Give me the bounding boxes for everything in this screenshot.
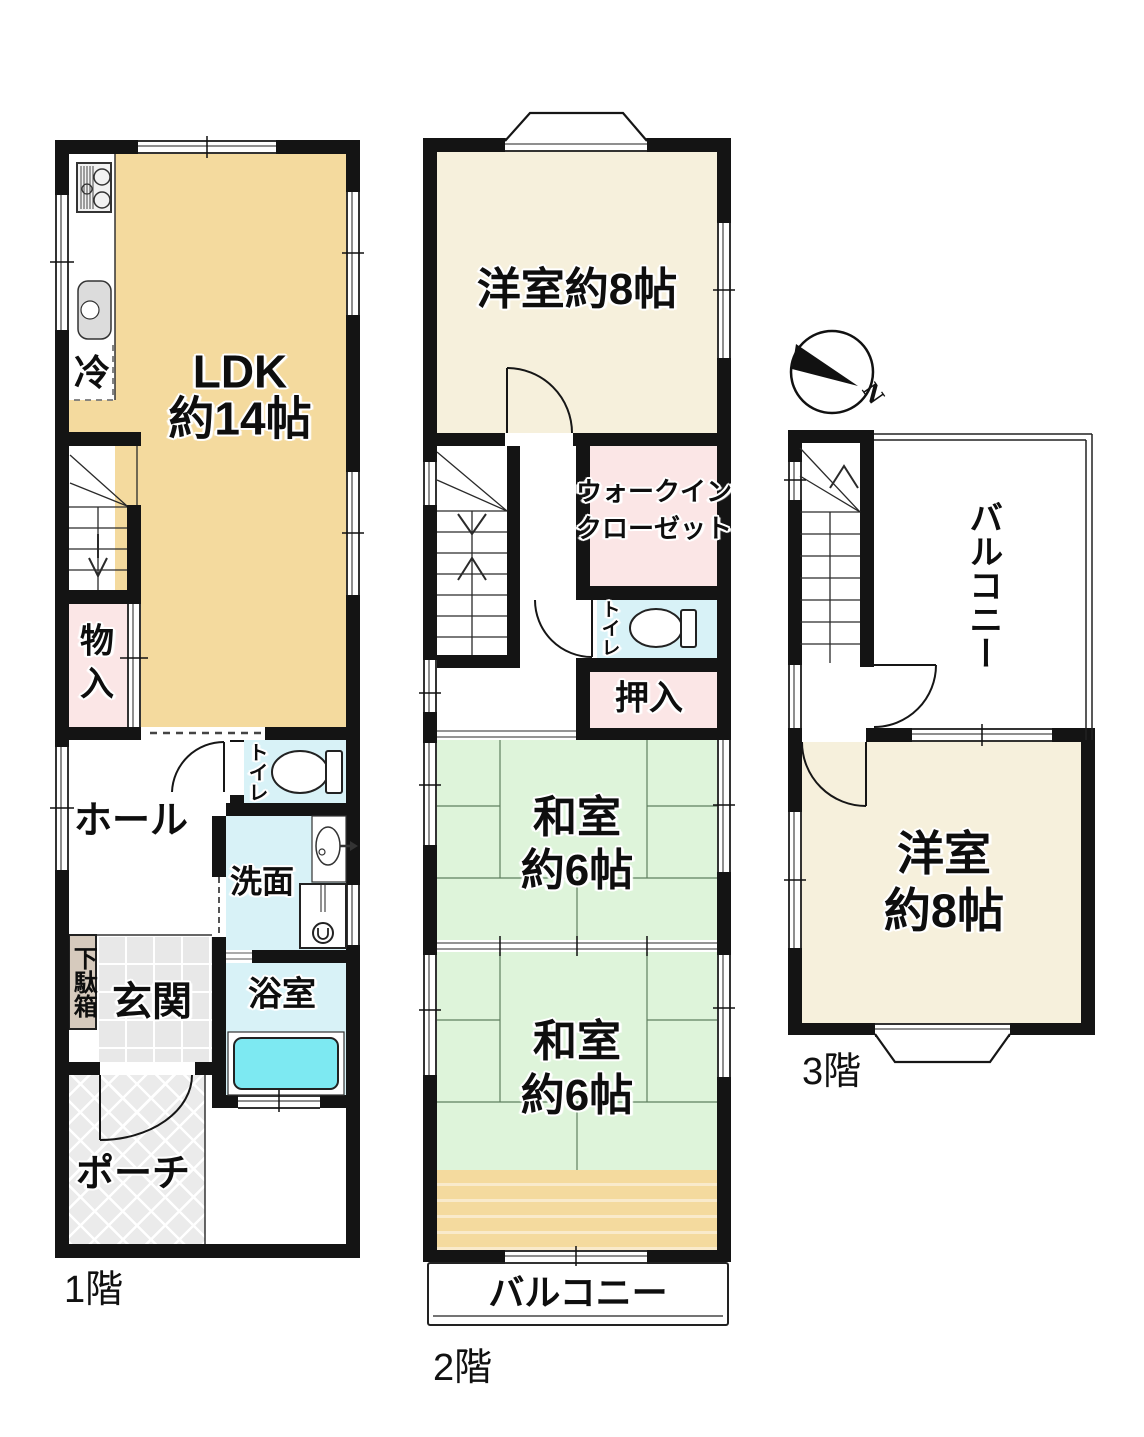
label-balcony-3f: バルコニー [963,500,1000,670]
room-western3f-area [800,742,1081,1023]
stairs-up-arrow-icon [458,558,486,580]
label-western2f: 洋室約8帖 [477,266,677,314]
stove-icon [77,163,111,212]
kitchen-sink-icon [78,281,111,339]
window [346,885,360,945]
window [55,747,69,870]
north-label: N [856,378,889,409]
label-tatami-b-line2: 約6帖 [521,1072,633,1120]
floor1-label: 1階 [64,1258,123,1313]
label-ldk-line1: LDK [193,347,288,398]
label-porch: ポーチ [76,1154,190,1196]
wall-segment [212,816,226,877]
stairs-up-arrow-icon [830,466,858,488]
label-tatami-a-line2: 約6帖 [521,847,633,895]
compass-icon: N [791,331,889,413]
label-shoe-cabinet: 下駄箱 [69,946,95,1018]
window [788,462,802,500]
floor2-label: 2階 [433,1336,492,1391]
door-opening [100,1062,195,1075]
floor-plan-canvas: N [0,0,1144,1437]
label-ldk-line2: 約14帖 [168,394,311,445]
window [505,138,647,152]
window [717,740,731,872]
label-toilet-1f: トイレ [245,742,267,802]
label-walkin-line1: ウォークイン [576,478,732,507]
sliding-door [127,604,141,727]
wall-segment [507,446,520,668]
door-arc [874,665,936,727]
label-western3f-line2: 約8帖 [884,885,1004,937]
stairs-down-arrow-icon [89,534,107,576]
label-fridge: 冷 [74,353,110,393]
window [238,1095,320,1109]
wall-segment [55,432,141,446]
window [423,743,437,845]
label-western3f-line1: 洋室 [897,828,991,880]
wall-segment [576,586,731,600]
wood-strip-area [437,1170,717,1250]
door-opening [212,877,226,937]
door-opening [226,950,252,963]
door-opening [505,433,573,446]
door-arc [535,600,592,657]
wall-segment [437,655,507,668]
wall-segment [55,727,141,740]
window [788,812,802,948]
label-toilet-2f: トイレ [598,600,619,657]
window [505,1250,647,1264]
stairs-3f [800,448,860,663]
sliding-opening [437,940,717,952]
wall-segment [55,1244,360,1258]
wall-segment [265,727,360,740]
window [55,195,69,330]
wall-segment [212,950,226,1108]
label-walkin-line2: クローゼット [576,515,732,544]
wall-segment [860,430,874,667]
label-storage: 物入 [78,621,116,706]
bay-window [875,1034,1010,1062]
window [423,660,437,712]
label-hall: ホール [74,801,188,843]
window [346,472,360,595]
floor3-label: 3階 [802,1040,861,1095]
window [788,665,802,728]
window [423,462,437,505]
window [875,1023,1010,1037]
door-opening [802,728,866,742]
wall-segment [1081,728,1095,1035]
wall-segment [55,1062,100,1075]
sliding-opening [437,728,576,740]
wall-segment [55,590,141,604]
label-tatami-b-line1: 和室 [533,1018,621,1066]
window [717,223,731,358]
label-washroom: 洗面 [230,864,294,899]
door-opening [230,742,244,795]
wall-segment [252,950,360,963]
label-oshiire: 押入 [615,680,683,717]
bay-window [505,113,647,141]
label-bathroom: 浴室 [248,976,316,1013]
wall-segment [576,658,731,672]
window [912,728,1052,742]
stairs-2f [437,452,507,655]
label-entrance: 玄関 [112,980,192,1024]
wall-segment [226,803,360,816]
window [138,140,276,154]
window [423,955,437,1075]
wall-segment [576,728,731,740]
stairs-down-arrow-icon [458,514,486,534]
label-balcony-2f: バルコニー [488,1273,667,1313]
label-tatami-a-line1: 和室 [533,794,621,842]
window [717,955,731,1077]
room-ldk-area-left [69,400,115,432]
wall-segment [195,1062,212,1075]
window [346,192,360,315]
door-opening [141,727,265,740]
door-arc [172,742,224,792]
